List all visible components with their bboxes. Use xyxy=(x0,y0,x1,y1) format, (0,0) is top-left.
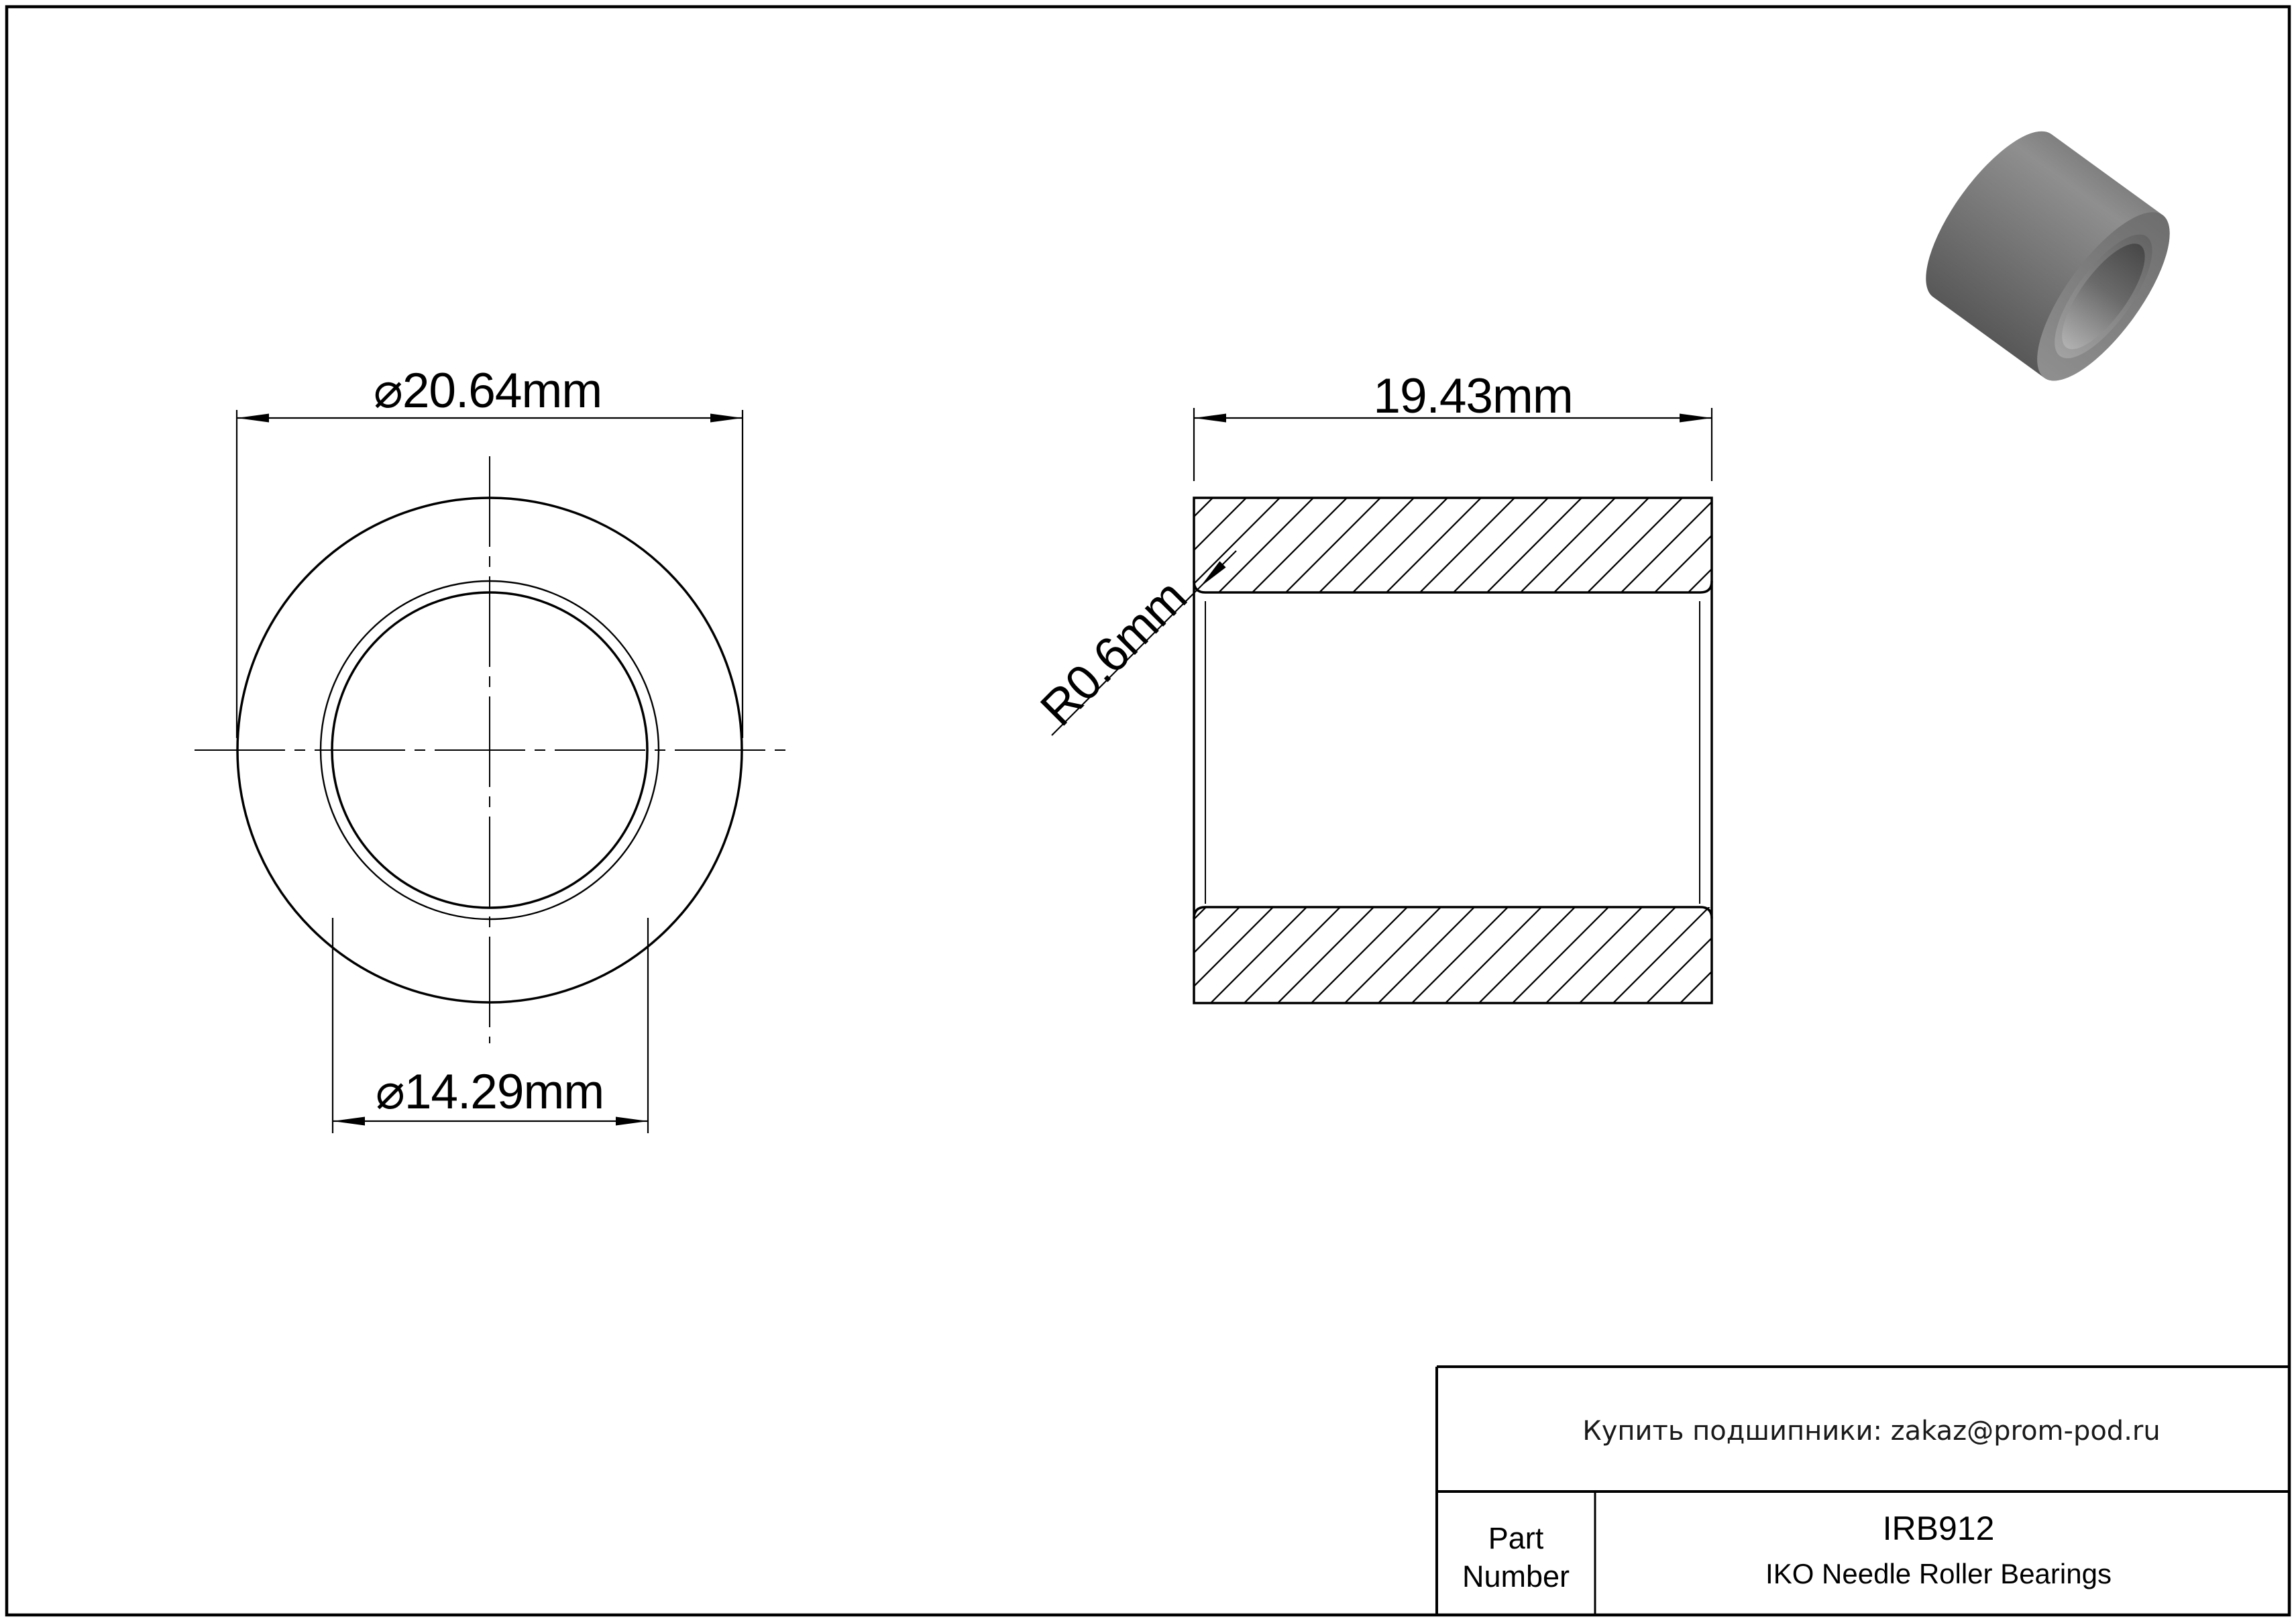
arrowhead-left-icon xyxy=(1194,414,1226,423)
bearing-3d-render xyxy=(1903,113,2192,400)
drawing-sheet: ⌀20.64mm ⌀14.29mm 19 xyxy=(0,0,2296,1623)
part-number-value: IRB912 xyxy=(1883,1510,1995,1547)
technical-drawing-canvas: ⌀20.64mm ⌀14.29mm 19 xyxy=(0,0,2296,1623)
contact-text: Купить подшипники: zakaz@prom-pod.ru xyxy=(1582,1416,2160,1447)
arrowhead-left-icon xyxy=(237,414,269,423)
product-line: IKO Needle Roller Bearings xyxy=(1765,1558,2112,1589)
section-view: 19.43mm R0.6mm xyxy=(1030,369,1712,1003)
bottom-hatched-band xyxy=(1194,907,1712,1003)
title-block: Купить подшипники: zakaz@prom-pod.ru Par… xyxy=(1437,1367,2289,1615)
part-number-label-line1: Part xyxy=(1488,1521,1544,1555)
width-label: 19.43mm xyxy=(1373,369,1572,423)
front-view: ⌀20.64mm ⌀14.29mm xyxy=(195,364,788,1133)
bore-diameter-label: ⌀14.29mm xyxy=(376,1065,604,1119)
arrowhead-right-icon xyxy=(616,1117,648,1126)
corner-radius-label: R0.6mm xyxy=(1030,570,1197,736)
arrowhead-right-icon xyxy=(1680,414,1712,423)
arrowhead-right-icon xyxy=(710,414,743,423)
arrowhead-left-icon xyxy=(333,1117,365,1126)
outer-diameter-label: ⌀20.64mm xyxy=(374,364,602,418)
part-number-label-line2: Number xyxy=(1462,1559,1570,1593)
top-hatched-band xyxy=(1194,498,1712,592)
width-dimension: 19.43mm xyxy=(1194,369,1712,481)
